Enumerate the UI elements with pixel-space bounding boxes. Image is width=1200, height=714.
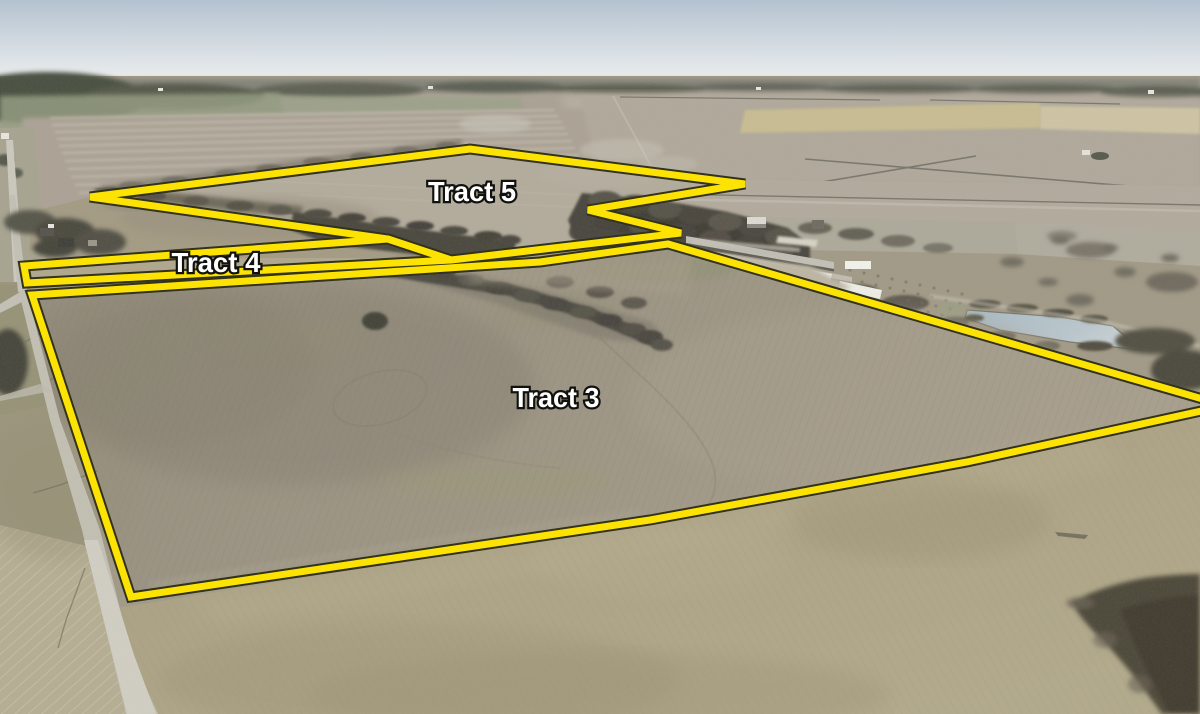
svg-text:Tract 3: Tract 3 <box>513 382 600 413</box>
svg-text:Tract 5: Tract 5 <box>428 176 516 207</box>
svg-text:Tract 4: Tract 4 <box>172 247 261 278</box>
